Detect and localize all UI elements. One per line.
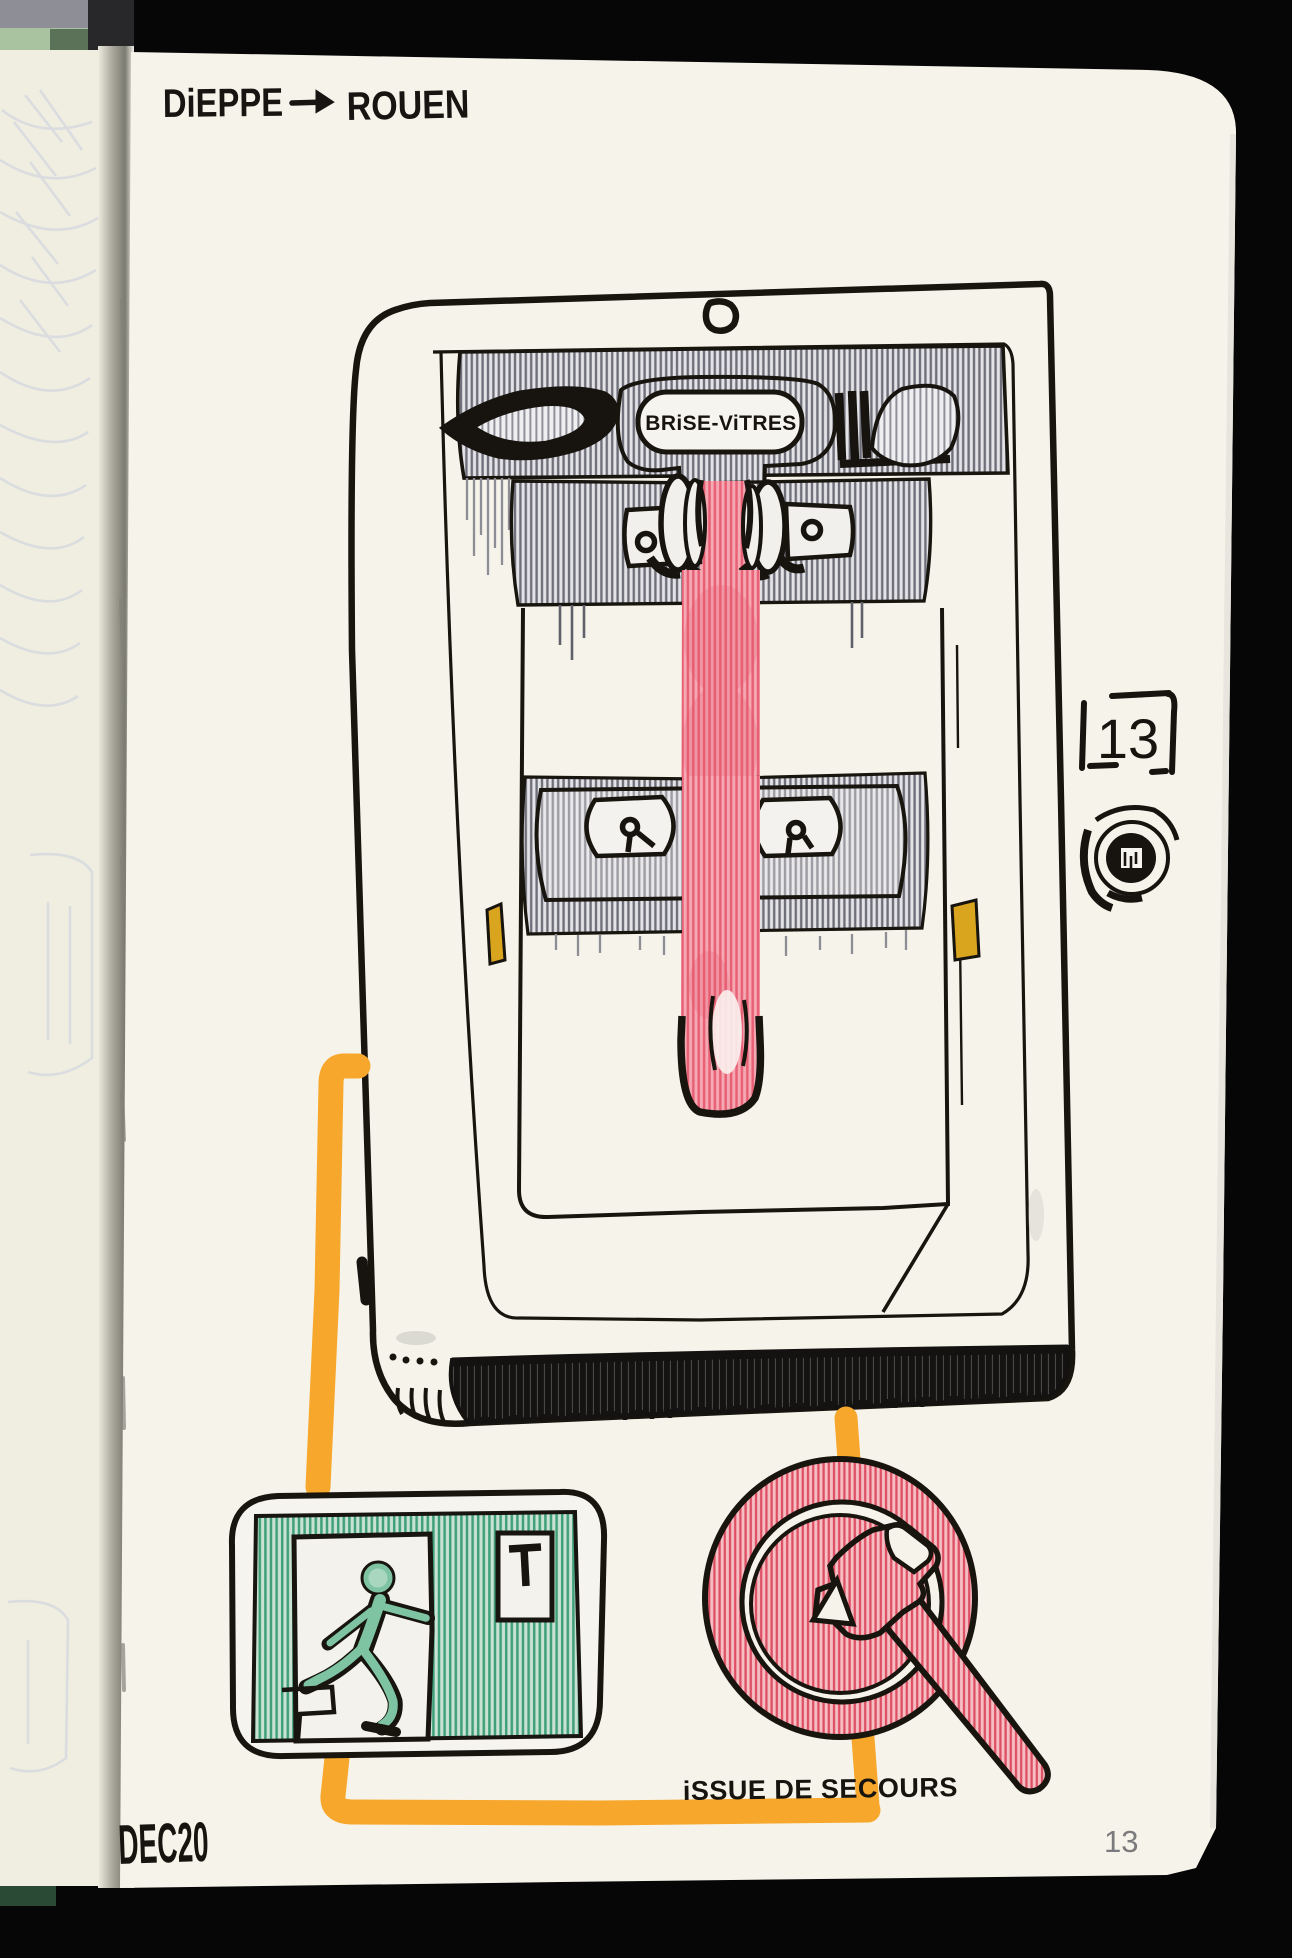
svg-text:ROUEN: ROUEN <box>346 81 470 129</box>
svg-text:DEC20: DEC20 <box>117 1812 209 1877</box>
svg-text:iSSUE DE SECOURS: iSSUE DE SECOURS <box>683 1772 958 1806</box>
svg-text:13: 13 <box>1104 1824 1138 1859</box>
svg-text:BRiSE-ViTRES: BRiSE-ViTRES <box>645 412 796 435</box>
svg-text:13: 13 <box>1097 707 1159 770</box>
svg-text:DiEPPE: DiEPPE <box>163 80 284 126</box>
